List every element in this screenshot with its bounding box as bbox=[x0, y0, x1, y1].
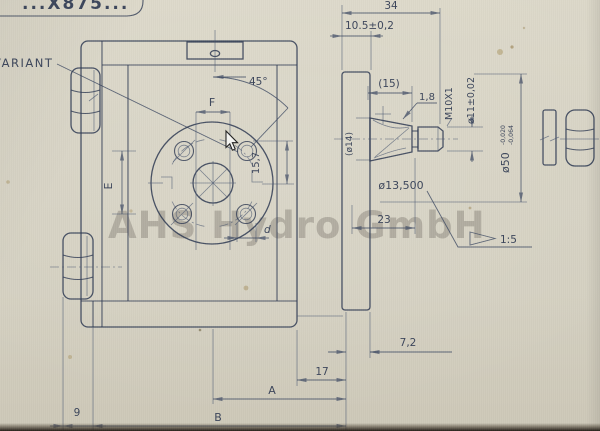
dim-E: E bbox=[102, 182, 115, 189]
dim-45deg: 45° bbox=[249, 76, 268, 88]
taper-shaft bbox=[370, 118, 412, 161]
dim-23: 23 bbox=[377, 214, 390, 226]
variant-callout: VARIANT bbox=[0, 56, 238, 152]
cad-drawing-photo[interactable]: AHS Hydro GmbH ...X875... VARIANT bbox=[0, 0, 600, 431]
photo-bottom-edge bbox=[0, 423, 600, 431]
dim-F: F bbox=[209, 96, 215, 109]
dim-1-8: 1,8 bbox=[419, 92, 435, 103]
dim-17: 17 bbox=[315, 366, 328, 378]
dim-7-2: 7,2 bbox=[400, 337, 417, 349]
part-number-text: ...X875... bbox=[22, 0, 129, 14]
dim-dia50-tol-upper: -0,020 bbox=[500, 125, 507, 145]
dim-thread: M10X1 bbox=[444, 87, 455, 120]
dim-dia50: ø50 bbox=[499, 152, 512, 173]
front-view bbox=[50, 30, 343, 327]
dim-9: 9 bbox=[74, 407, 81, 419]
top-tab bbox=[187, 30, 243, 72]
dim-15: (15) bbox=[378, 78, 400, 90]
dim-dia11: ø11±0,02 bbox=[466, 77, 477, 124]
dim-dia50-tol-lower: -0,064 bbox=[508, 125, 515, 145]
center-hole bbox=[190, 161, 236, 206]
dim-10-5: 10.5±0,2 bbox=[345, 20, 394, 32]
dim-dia13500: ø13,500 bbox=[378, 179, 423, 192]
bolt-hole-upper-left bbox=[173, 140, 195, 162]
part-number-box: ...X875... bbox=[0, 0, 143, 16]
dim-15-7: 15,7 bbox=[251, 152, 262, 174]
cad-drawing-svg: AHS Hydro GmbH ...X875... VARIANT bbox=[0, 0, 600, 431]
dim-d: d bbox=[264, 224, 271, 236]
dim-A: A bbox=[268, 384, 276, 397]
dim-dia14: (ø14) bbox=[345, 132, 355, 156]
dim-34: 34 bbox=[384, 0, 398, 12]
photo-edge-shade bbox=[586, 0, 600, 431]
dim-taper-ratio: 1:5 bbox=[500, 234, 517, 246]
variant-label: VARIANT bbox=[0, 56, 53, 70]
